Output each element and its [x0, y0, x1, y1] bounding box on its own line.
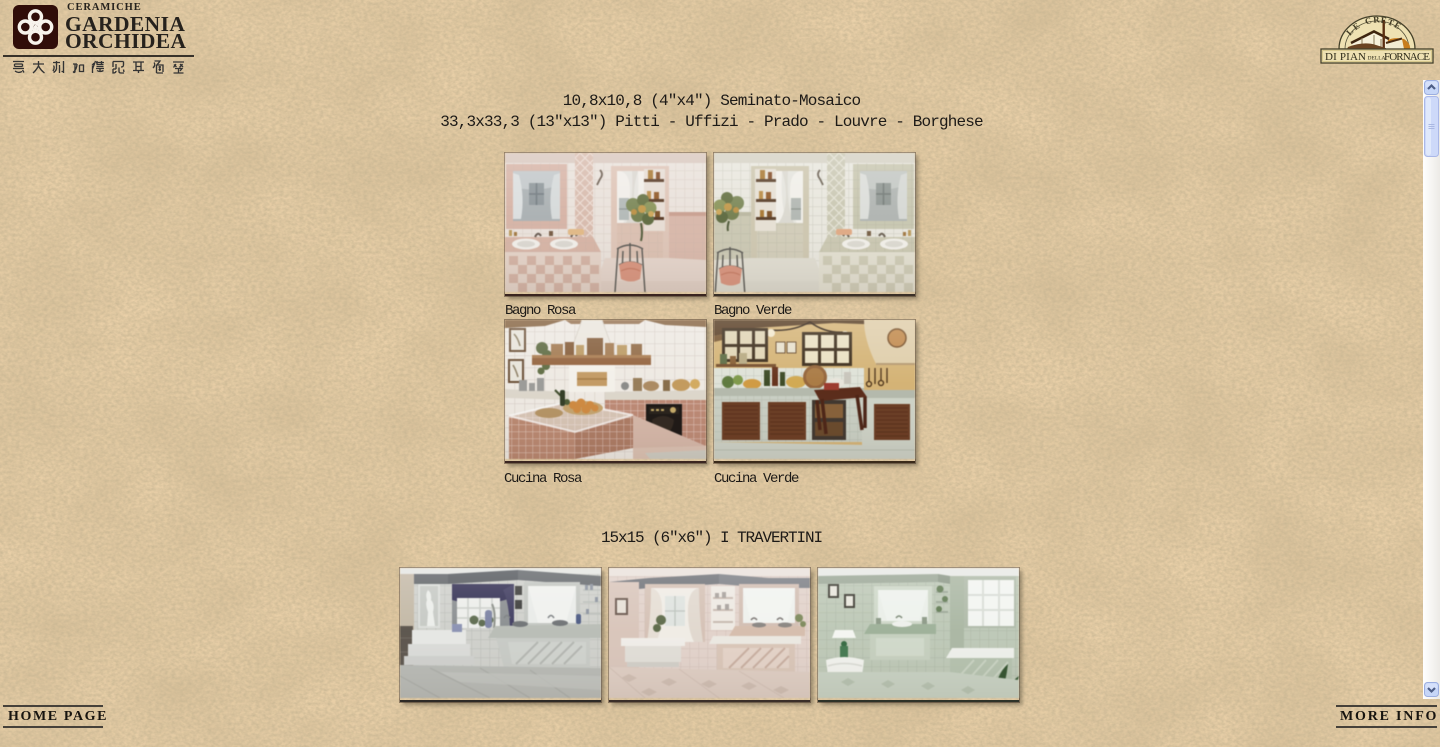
svg-text:FORNACE: FORNACE: [1384, 51, 1430, 63]
svg-text:DI PIAN: DI PIAN: [1325, 51, 1366, 63]
svg-text:DELLA: DELLA: [1368, 56, 1386, 62]
